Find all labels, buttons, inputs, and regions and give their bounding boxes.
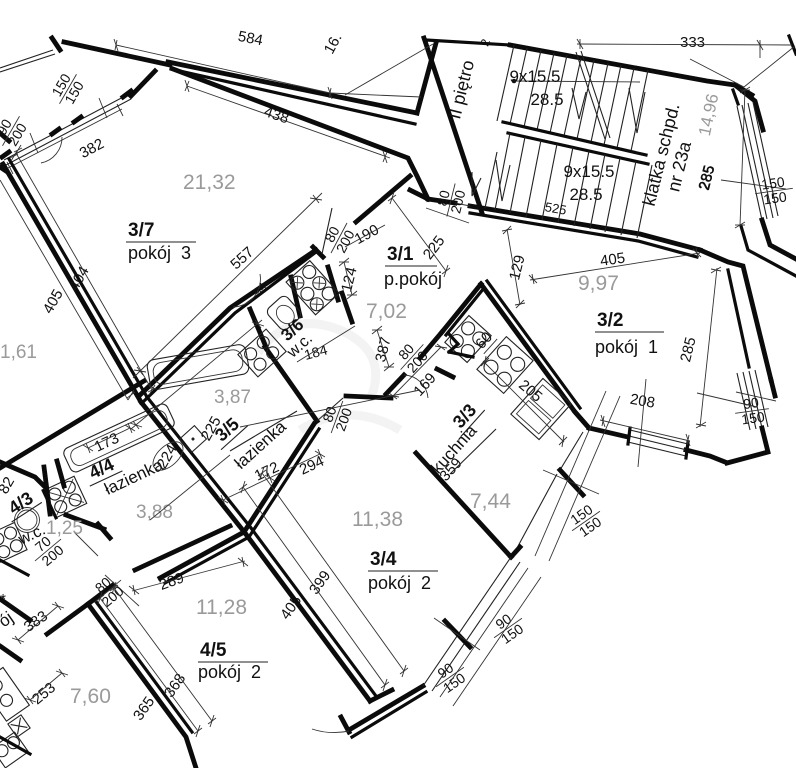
svg-text:pokój 2: pokój 2 bbox=[368, 573, 431, 593]
svg-text:11,38: 11,38 bbox=[352, 508, 403, 531]
svg-text:1,61: 1,61 bbox=[0, 342, 37, 363]
svg-text:21,32: 21,32 bbox=[183, 171, 236, 194]
svg-text:pokój 2: pokój 2 bbox=[198, 662, 261, 682]
svg-text:7,44: 7,44 bbox=[470, 490, 511, 513]
svg-text:1,25: 1,25 bbox=[46, 518, 83, 539]
svg-text:*: * bbox=[0, 591, 6, 608]
svg-text:3/7: 3/7 bbox=[128, 220, 154, 241]
svg-text:28.5: 28.5 bbox=[569, 185, 602, 204]
svg-text:11,28: 11,28 bbox=[196, 596, 247, 619]
svg-text:3/2: 3/2 bbox=[597, 310, 623, 331]
svg-text:3/1: 3/1 bbox=[387, 244, 414, 265]
svg-text:3,87: 3,87 bbox=[214, 387, 251, 408]
svg-text:9,97: 9,97 bbox=[578, 272, 619, 295]
svg-text:3,88: 3,88 bbox=[136, 502, 173, 523]
svg-text:pokój 1: pokój 1 bbox=[595, 337, 658, 357]
svg-text:3/4: 3/4 bbox=[370, 549, 397, 570]
svg-text:28.5: 28.5 bbox=[530, 90, 563, 109]
svg-text:pokój 3: pokój 3 bbox=[128, 243, 191, 263]
svg-text:4/5: 4/5 bbox=[200, 640, 227, 661]
svg-text:9x15.5: 9x15.5 bbox=[563, 162, 614, 181]
svg-text:7,02: 7,02 bbox=[366, 300, 407, 323]
svg-text:333: 333 bbox=[680, 34, 705, 51]
svg-text:7,60: 7,60 bbox=[70, 685, 111, 708]
svg-text:9x15.5: 9x15.5 bbox=[509, 67, 560, 86]
svg-text:p.pokój: p.pokój bbox=[384, 269, 442, 289]
